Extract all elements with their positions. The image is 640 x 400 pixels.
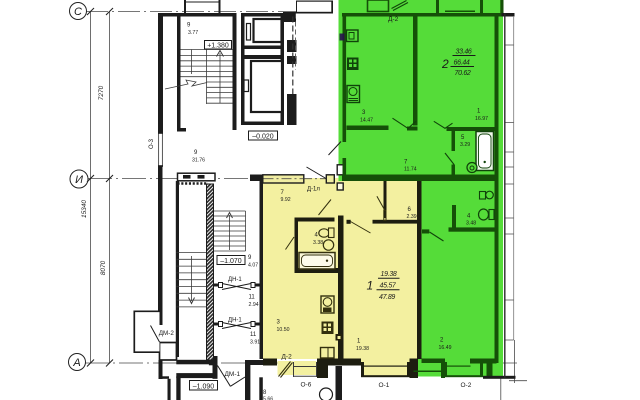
svg-text:Д-2: Д-2 (282, 354, 293, 361)
svg-text:19.38: 19.38 (356, 346, 369, 352)
svg-text:11: 11 (249, 295, 256, 301)
svg-text:О-1: О-1 (379, 382, 390, 389)
svg-text:47.89: 47.89 (379, 294, 395, 301)
svg-text:31.76: 31.76 (192, 158, 205, 164)
svg-text:И: И (75, 174, 83, 186)
svg-text:3.29: 3.29 (460, 142, 470, 148)
svg-text:О-2: О-2 (461, 382, 472, 389)
svg-text:9.92: 9.92 (281, 197, 291, 203)
svg-text:2.39: 2.39 (407, 214, 417, 220)
svg-text:8070: 8070 (100, 260, 107, 275)
svg-text:4.07: 4.07 (248, 263, 258, 269)
svg-text:1: 1 (367, 279, 374, 293)
svg-text:5.66: 5.66 (263, 397, 273, 400)
svg-text:О-6: О-6 (301, 382, 312, 389)
svg-text:70.62: 70.62 (454, 70, 470, 77)
svg-text:–0.020: –0.020 (252, 134, 274, 141)
svg-text:А: А (72, 357, 80, 369)
svg-text:45.57: 45.57 (379, 283, 396, 290)
svg-text:+1.380: +1.380 (207, 43, 229, 50)
svg-text:Д-1л: Д-1л (307, 187, 320, 193)
svg-text:10.50: 10.50 (277, 327, 290, 333)
svg-text:66.44: 66.44 (453, 60, 469, 67)
svg-text:ДН-1: ДН-1 (228, 318, 242, 324)
svg-text:16.49: 16.49 (439, 345, 452, 351)
svg-text:3.77: 3.77 (188, 30, 198, 36)
svg-text:–1.090: –1.090 (193, 384, 215, 391)
svg-text:2: 2 (441, 57, 449, 71)
svg-text:7270: 7270 (98, 85, 105, 100)
svg-text:16.97: 16.97 (475, 116, 488, 122)
svg-text:3.38: 3.38 (313, 240, 323, 246)
svg-text:33.46: 33.46 (455, 49, 471, 56)
svg-text:19.38: 19.38 (380, 271, 396, 278)
svg-text:О-3: О-3 (149, 138, 155, 149)
svg-text:3.91: 3.91 (250, 340, 260, 346)
svg-text:3.48: 3.48 (466, 221, 476, 227)
svg-text:11.74: 11.74 (404, 167, 417, 173)
svg-text:ДМ-2: ДМ-2 (159, 330, 175, 337)
svg-text:–1.070: –1.070 (220, 258, 242, 265)
svg-text:11: 11 (250, 332, 257, 338)
svg-text:14.47: 14.47 (360, 118, 373, 124)
svg-text:ДН-1: ДН-1 (228, 277, 242, 283)
svg-text:2.94: 2.94 (249, 302, 259, 308)
svg-text:ДМ-1: ДМ-1 (225, 371, 241, 378)
svg-text:Д-2: Д-2 (388, 16, 399, 23)
svg-text:15340: 15340 (81, 200, 88, 218)
svg-text:С: С (74, 6, 82, 18)
